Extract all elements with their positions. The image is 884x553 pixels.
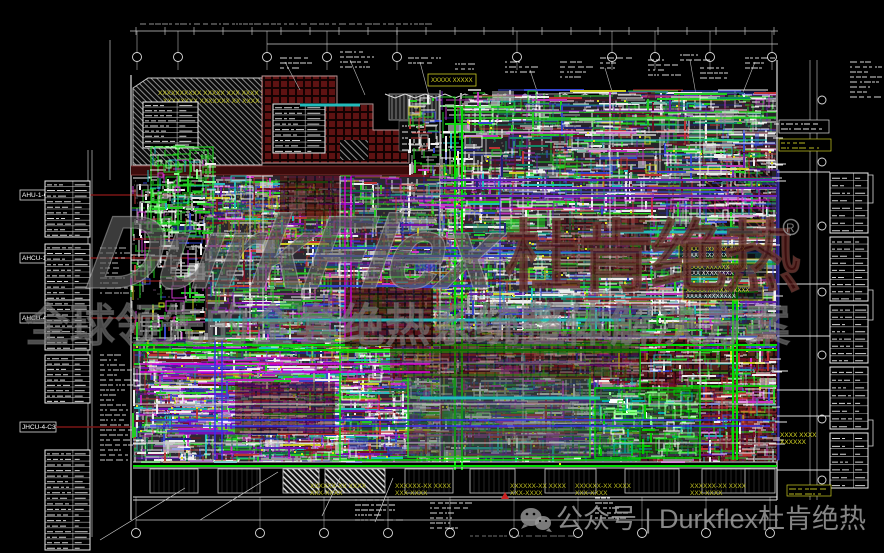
svg-text:DurkFlex: DurkFlex [80,195,514,311]
svg-text:XXX-XXXX: XXX-XXXX [395,490,428,497]
svg-text:全球领先的全套绝热系统整体解决方案: 全球领先的全套绝热系统整体解决方案 [24,300,791,351]
svg-text:XXX-XXXX: XXX-XXXX [690,490,723,497]
svg-text:XXXXX XXXXX: XXXXX XXXXX [431,78,473,84]
svg-text:XXX-XXXX: XXX-XXXX [310,490,343,497]
svg-text:XXXX XXXX: XXXX XXXX [780,432,817,439]
svg-text:XXXXXX: XXXXXX [780,439,807,446]
svg-text:JHCU-4-C3: JHCU-4-C3 [22,424,56,431]
svg-text:杜肯绝热: 杜肯绝热 [504,213,801,301]
svg-text:XXXXXX-XX XXXX: XXXXXX-XX XXXX [575,483,632,490]
svg-text:公众号 | Durkflex杜肯绝热: 公众号 | Durkflex杜肯绝热 [556,504,866,534]
svg-text:XXXXXX-XX XXXX: XXXXXX-XX XXXX [310,483,367,490]
svg-text:XXX-XXXX: XXX-XXXX [510,490,543,497]
svg-text:XXXXXX-XX XXXX: XXXXXX-XX XXXX [395,483,452,490]
svg-text:XXXXXX-XX XXXX: XXXXXX-XX XXXX [690,483,747,490]
svg-text:R: R [786,221,795,235]
svg-text:XXXXXX-XX XXXX: XXXXXX-XX XXXX [510,483,567,490]
svg-text:XXX-XXXX: XXX-XXXX [575,490,608,497]
